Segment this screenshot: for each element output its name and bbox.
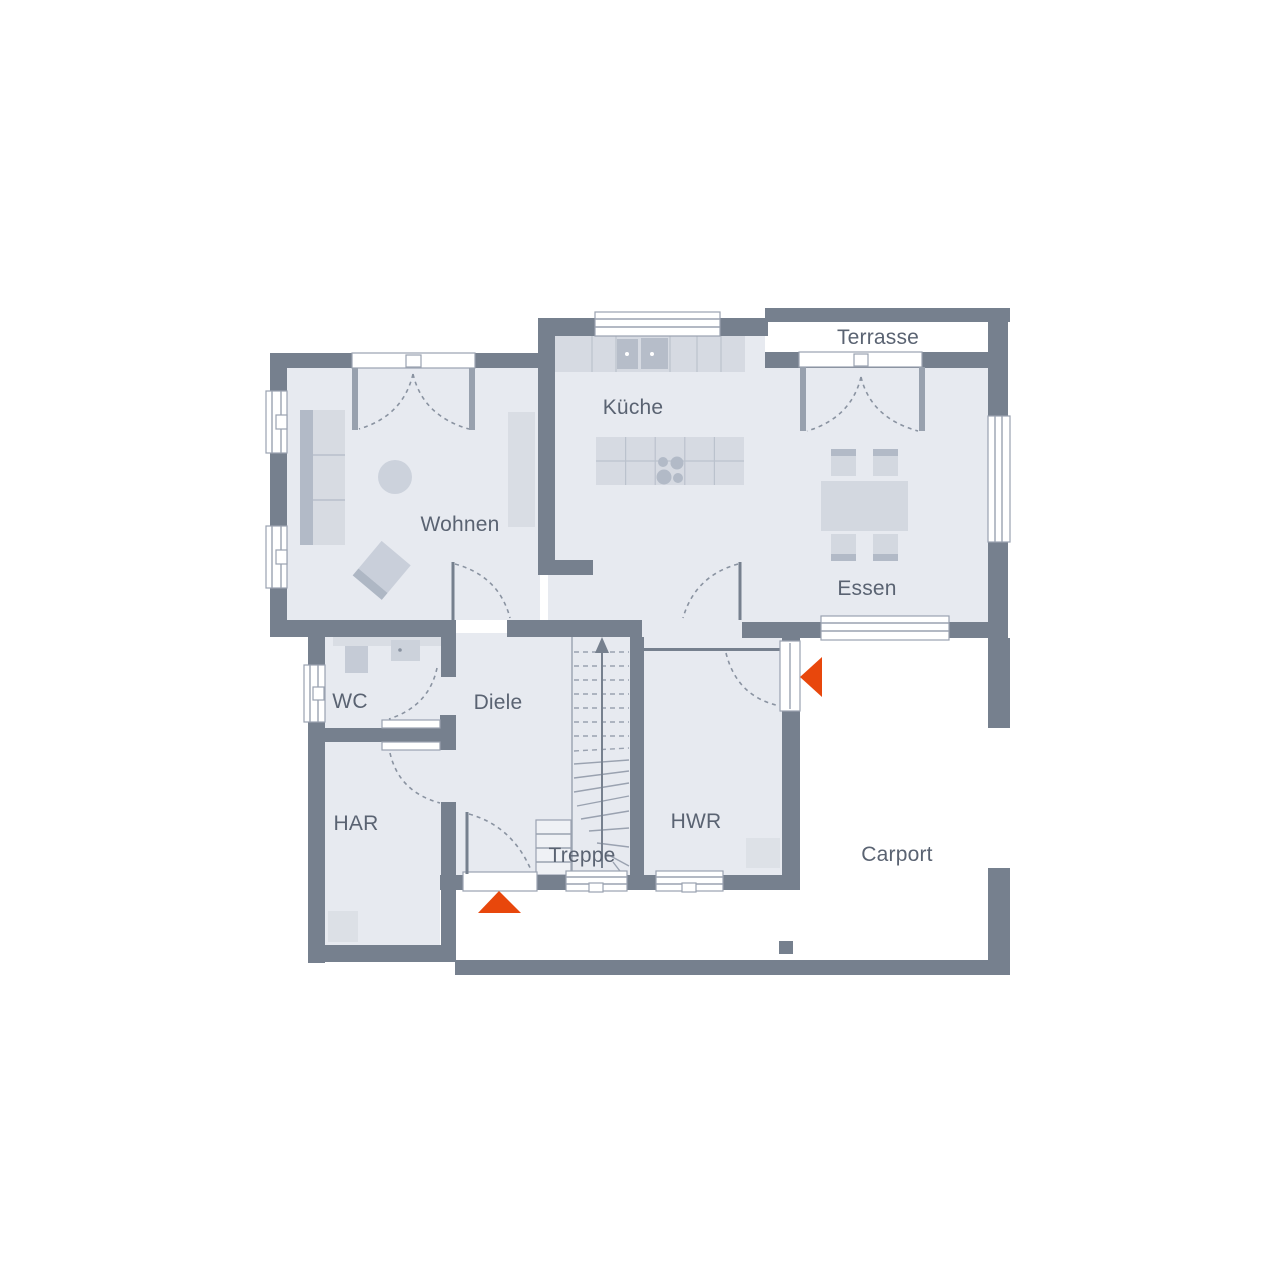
room-label-wc: WC xyxy=(332,690,367,714)
room-label-hwr: HWR xyxy=(671,810,722,834)
room-label-wohnen: Wohnen xyxy=(420,513,499,537)
hwr-door-leaf xyxy=(723,648,782,651)
wall-hwr-partition xyxy=(642,648,723,651)
floor-plan: Terrasse Küche Wohnen Essen WC Diele HAR… xyxy=(0,0,1280,1280)
wc-sink xyxy=(391,640,420,661)
kitchen-appliance xyxy=(641,338,668,369)
sofa-seat xyxy=(313,410,345,545)
room-label-kueche: Küche xyxy=(603,396,664,420)
coffee-table xyxy=(378,460,412,494)
window-treppe-south xyxy=(566,871,627,892)
entrance-arrow-up-icon xyxy=(478,891,521,913)
room-label-carport: Carport xyxy=(861,843,932,867)
room-label-diele: Diele xyxy=(474,691,523,715)
entrance-arrow-left-icon xyxy=(800,657,822,697)
har-equipment xyxy=(328,911,358,942)
wall-wc-har xyxy=(310,728,445,742)
window-essen-south xyxy=(821,616,949,640)
toilet xyxy=(345,646,368,673)
wall-wohnen-diele-a xyxy=(270,620,453,637)
window-essen-east xyxy=(988,416,1010,542)
room-label-har: HAR xyxy=(334,812,379,836)
carport-door xyxy=(780,641,800,711)
dining-table xyxy=(821,481,908,531)
window-hwr-south xyxy=(656,871,723,892)
floor-plan-drawing xyxy=(0,0,1280,1280)
room-label-treppe: Treppe xyxy=(549,844,616,868)
wall-south-carport xyxy=(455,960,1010,975)
wall-wohnen-diele-b xyxy=(507,620,642,637)
sideboard xyxy=(508,412,535,527)
wall-south-har xyxy=(308,945,456,962)
window-wohnen-west-1 xyxy=(266,391,287,453)
wall-wc-diele xyxy=(441,620,456,677)
sofa-back xyxy=(300,410,313,545)
diele-wc-floor xyxy=(325,633,630,875)
wall-wohnen-kueche xyxy=(538,318,555,560)
window-wohnen-west-2 xyxy=(266,526,287,588)
wall-carport-east-upper xyxy=(988,638,1010,728)
hwr-equipment xyxy=(746,838,780,868)
wall-north-terrasse xyxy=(765,308,1010,322)
wall-treppe-hwr xyxy=(630,637,644,875)
carport-post xyxy=(779,941,793,954)
room-label-terrasse: Terrasse xyxy=(837,326,919,350)
window-wc-west xyxy=(304,665,325,722)
wall-carport-east-lower xyxy=(988,868,1010,975)
window-kueche-north xyxy=(595,312,720,336)
room-label-essen: Essen xyxy=(837,577,896,601)
